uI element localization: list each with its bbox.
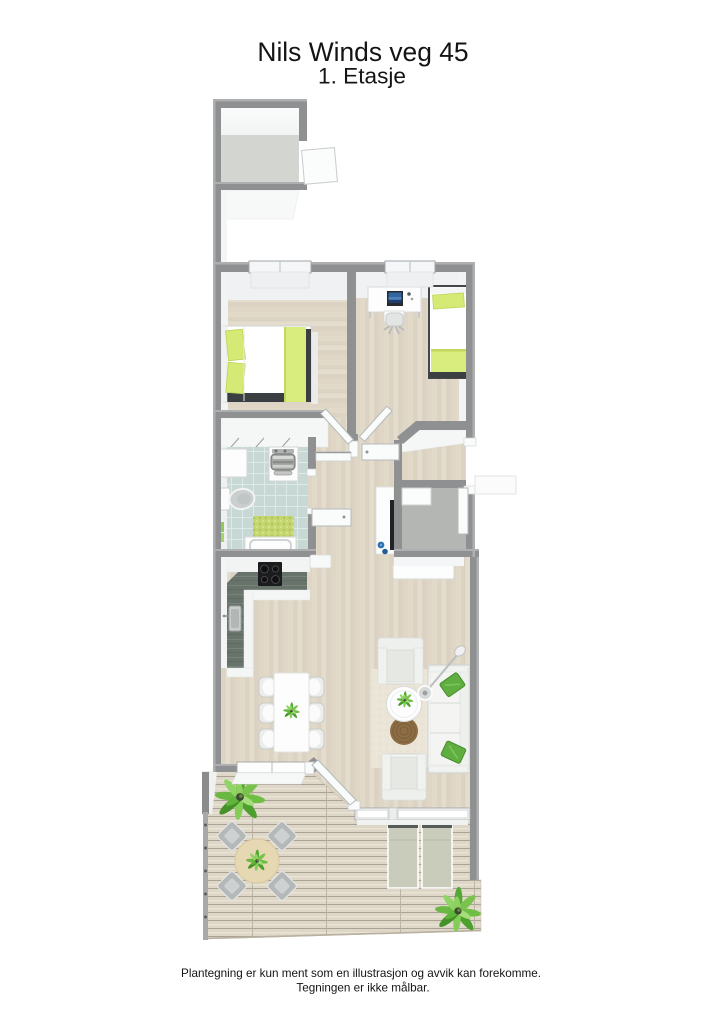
svg-text:Plantegning er kun ment som en: Plantegning er kun ment som en illustras… [181,967,541,980]
svg-text:Tegningen er ikke målbar.: Tegningen er ikke målbar. [296,982,429,995]
svg-text:1. Etasje: 1. Etasje [318,64,406,89]
svg-text:Nils Winds veg 45: Nils Winds veg 45 [257,37,468,67]
